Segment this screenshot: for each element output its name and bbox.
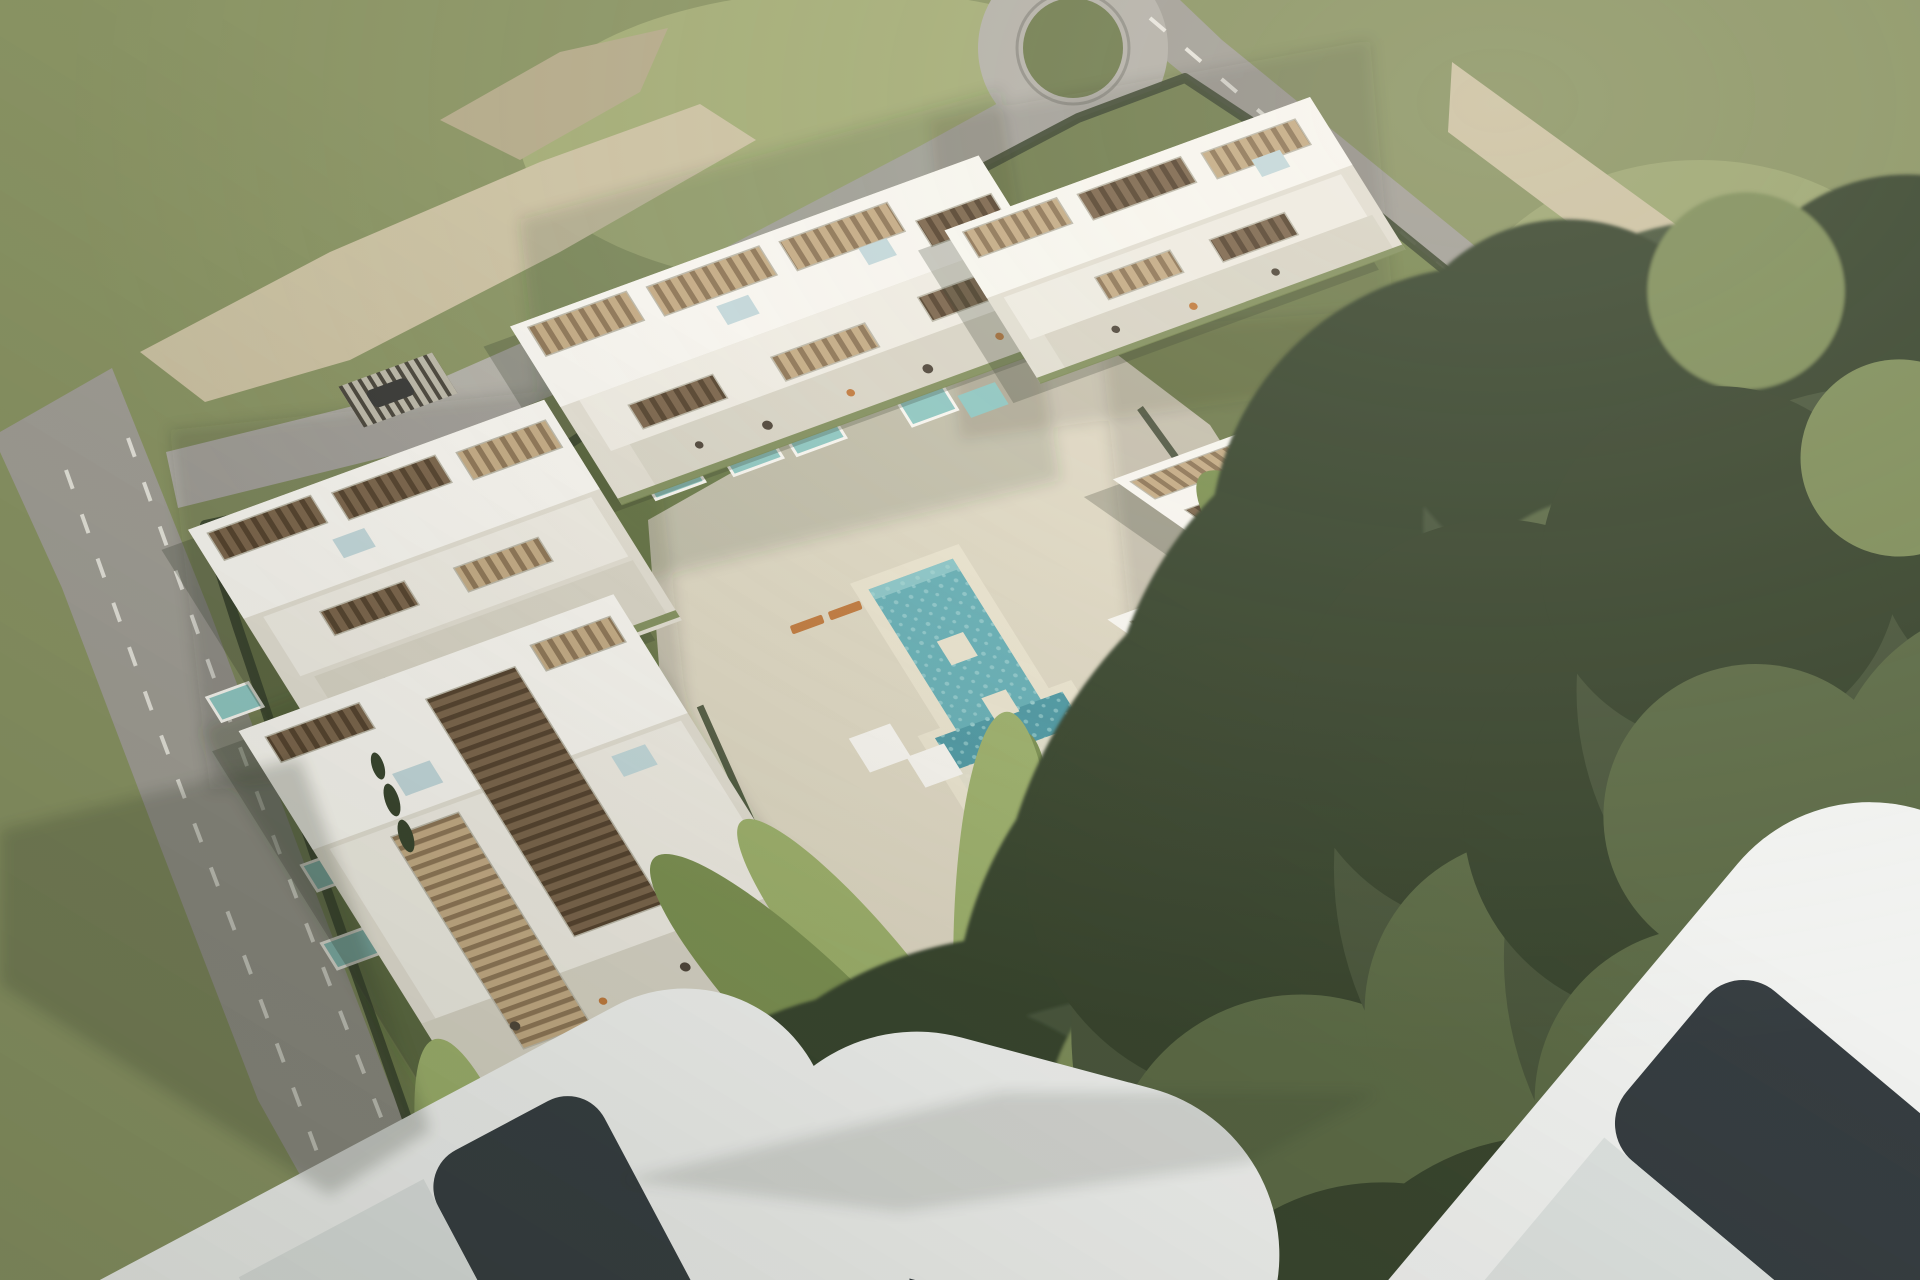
lighting (0, 0, 1920, 1280)
vignette (0, 0, 1920, 1280)
aerial-render: Aerial drone-view 3D rendering of a gate… (0, 0, 1920, 1280)
aerial-render-stage: Aerial drone-view 3D rendering of a gate… (0, 0, 1920, 1280)
